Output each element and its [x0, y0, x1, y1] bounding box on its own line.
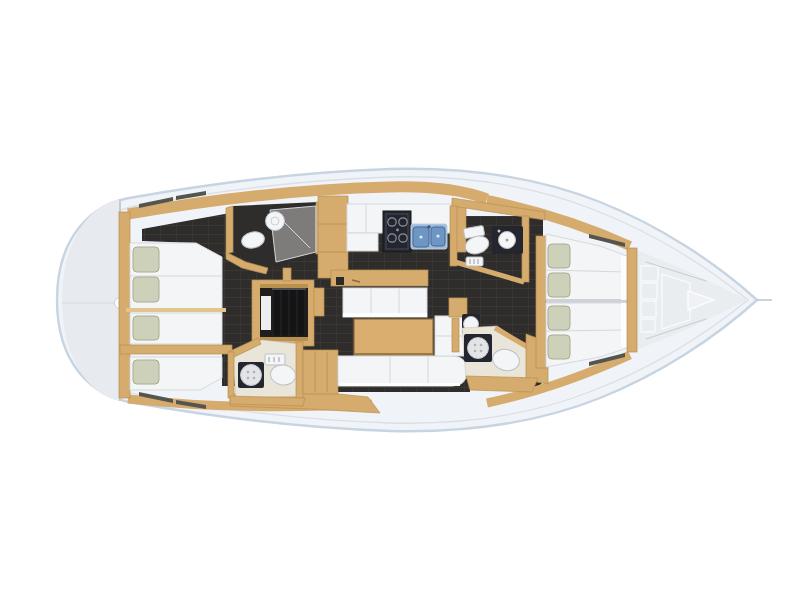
head-wall — [466, 376, 538, 392]
head-wall — [522, 216, 529, 282]
head-wall — [296, 342, 303, 398]
head-wall — [452, 318, 459, 352]
berth-headboard — [536, 236, 546, 368]
transom-deck — [62, 199, 120, 401]
pillow — [133, 277, 159, 302]
saloon-bench: saloon-bench — [343, 288, 427, 317]
stairs-landing — [261, 296, 271, 330]
sink-drain — [506, 239, 509, 242]
vanity-sink — [265, 354, 285, 365]
mast-step — [336, 277, 344, 285]
double-sink: double-sink — [411, 224, 447, 249]
pillow — [133, 247, 159, 272]
pillow — [548, 306, 570, 330]
transom-swim-platform: transom-swim-platform — [62, 199, 126, 401]
pillow — [133, 316, 159, 340]
shower-basin — [468, 338, 489, 359]
pillow — [548, 273, 570, 297]
galley-counter-return — [347, 233, 378, 251]
berth-foot-edge — [621, 256, 627, 300]
head-wall — [228, 352, 234, 398]
pillow — [548, 244, 570, 268]
stairs-post — [283, 268, 291, 281]
layout-plan-svg: hull transom-swim-platform forepeak-sail… — [0, 0, 800, 600]
pillow — [548, 335, 570, 359]
stairs-rail — [260, 284, 308, 288]
berth-divider-trim — [126, 308, 226, 312]
shower-basin — [241, 365, 262, 386]
forward-cabins: forward-cabin-port-berth — [536, 234, 637, 368]
berth-foot-edge — [621, 303, 627, 347]
aft-cabins: aft-cabin-port-berth — [120, 243, 232, 390]
saloon-table: saloon-table — [354, 319, 433, 356]
faucet — [427, 225, 431, 229]
head-cabinet — [303, 350, 338, 394]
sink-basin — [266, 212, 285, 231]
stove: stove — [383, 211, 411, 252]
head-wall — [230, 396, 305, 406]
aft-bulkhead-wood — [119, 212, 130, 398]
sink-drain — [419, 235, 422, 238]
saloon-sideboard — [331, 270, 428, 286]
aft-berth-wood-beam — [120, 345, 232, 354]
head-wall — [226, 206, 233, 254]
faucet — [498, 230, 501, 233]
wardrobe — [318, 196, 348, 278]
forward-bulkhead — [627, 248, 637, 352]
sink-drain — [436, 234, 439, 237]
head-wall — [450, 206, 457, 266]
berth-center-divider — [546, 299, 627, 303]
yacht-layout-plan: hull transom-swim-platform forepeak-sail… — [0, 0, 800, 600]
pillow — [133, 360, 159, 384]
